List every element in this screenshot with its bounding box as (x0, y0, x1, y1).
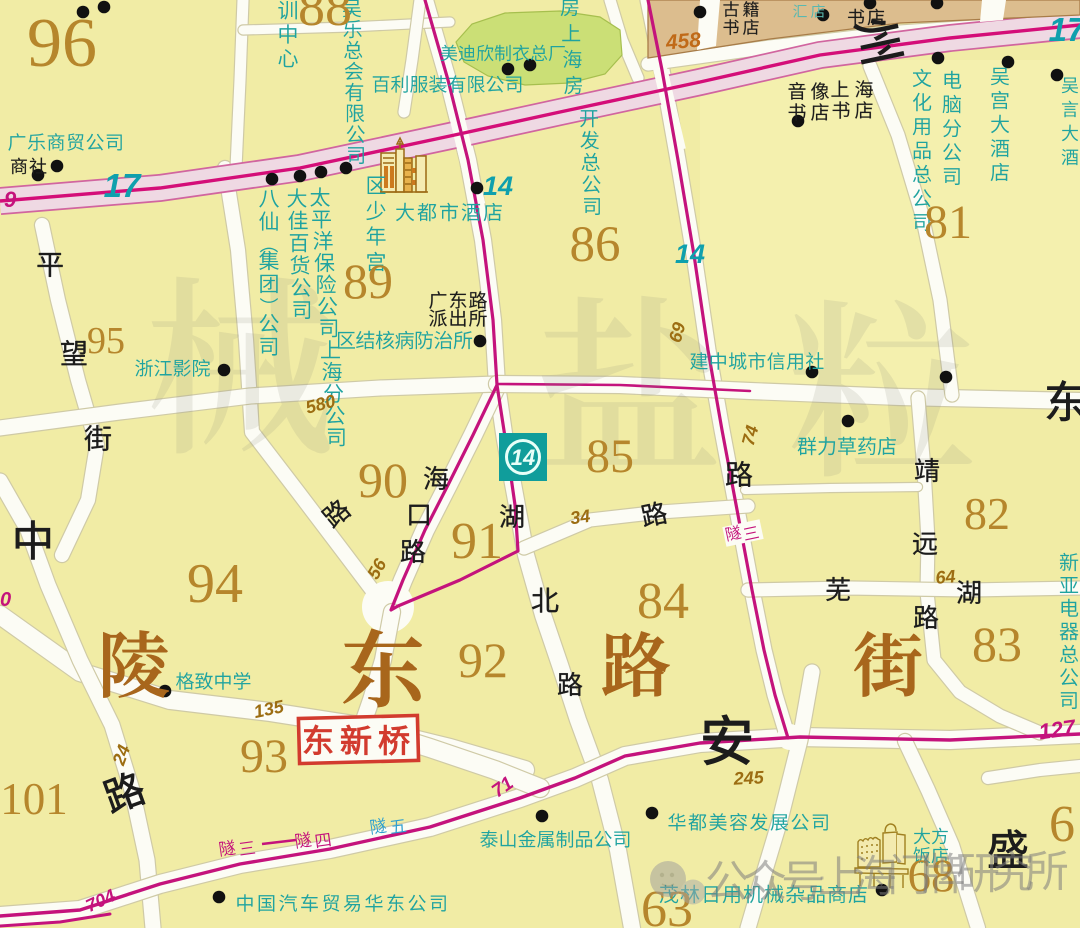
svg-text:95: 95 (87, 320, 125, 362)
svg-text:85: 85 (586, 430, 634, 483)
svg-text:6: 6 (1049, 796, 1075, 853)
svg-text:88: 88 (298, 0, 352, 37)
svg-text:14: 14 (483, 171, 513, 201)
svg-text:83: 83 (972, 616, 1022, 672)
svg-text:90: 90 (358, 452, 408, 508)
svg-text:84: 84 (637, 573, 689, 630)
svg-text:86: 86 (570, 217, 621, 273)
svg-text:64: 64 (935, 566, 957, 588)
svg-text:93: 93 (240, 730, 288, 783)
svg-text:9: 9 (4, 187, 17, 212)
svg-text:14: 14 (675, 239, 705, 269)
svg-text:101: 101 (0, 774, 68, 824)
svg-text:14: 14 (511, 445, 535, 470)
svg-text:91: 91 (451, 513, 503, 570)
svg-text:81: 81 (924, 196, 972, 249)
svg-text:127: 127 (1037, 714, 1079, 744)
svg-text::: : (818, 866, 826, 899)
svg-text:17: 17 (1049, 11, 1080, 48)
svg-text:82: 82 (964, 488, 1010, 539)
svg-text:458: 458 (664, 29, 702, 55)
svg-text:0: 0 (0, 589, 11, 611)
svg-text:34: 34 (569, 506, 592, 529)
svg-text:94: 94 (187, 553, 243, 615)
svg-text:92: 92 (458, 632, 508, 688)
svg-text:245: 245 (732, 767, 765, 789)
svg-text:96: 96 (27, 5, 97, 82)
svg-text:17: 17 (104, 167, 142, 204)
svg-text:89: 89 (343, 253, 393, 309)
